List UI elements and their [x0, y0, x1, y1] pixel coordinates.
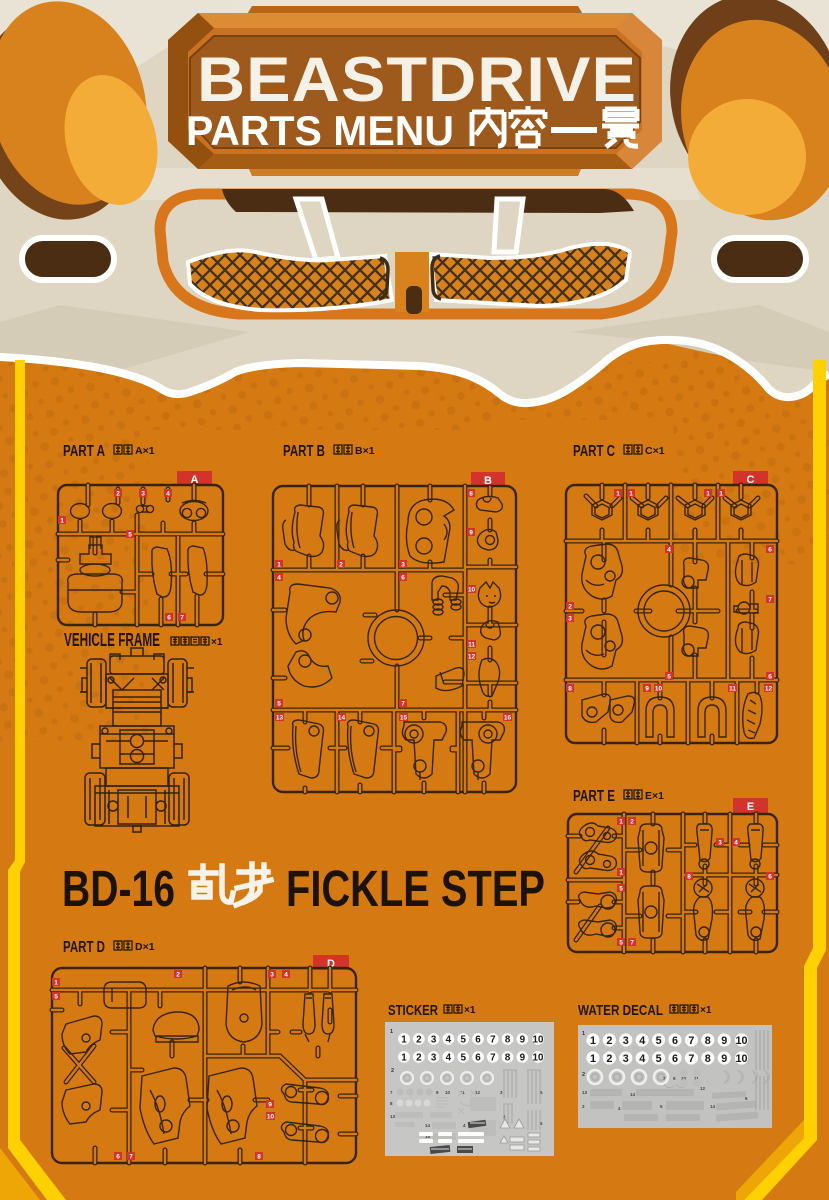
svg-text:3: 3 — [431, 1053, 437, 1064]
svg-text:1: 1 — [582, 1031, 585, 1037]
svg-text:14: 14 — [630, 1092, 636, 1097]
svg-text:1: 1 — [590, 1053, 596, 1065]
svg-text:2: 2 — [582, 1072, 585, 1078]
svg-text:PART B: PART B — [283, 443, 325, 460]
svg-text:5: 5 — [619, 886, 623, 893]
svg-text:6: 6 — [672, 1035, 678, 1047]
svg-text:B×1: B×1 — [355, 445, 375, 457]
svg-text:C×1: C×1 — [645, 445, 665, 457]
svg-text:4: 4 — [166, 491, 170, 498]
svg-text:13: 13 — [582, 1090, 588, 1095]
svg-text:10: 10 — [468, 587, 476, 594]
svg-text:5: 5 — [128, 532, 132, 539]
svg-text:3: 3 — [270, 972, 274, 979]
svg-text:6: 6 — [475, 1053, 481, 1064]
svg-text:WATER DECAL: WATER DECAL — [578, 1002, 663, 1019]
svg-text:3: 3 — [141, 491, 145, 498]
svg-text:1: 1 — [590, 1035, 596, 1047]
svg-text:14: 14 — [425, 1123, 431, 1128]
svg-text:4: 4 — [446, 1053, 452, 1064]
svg-text:6: 6 — [672, 1053, 678, 1065]
svg-text:8: 8 — [257, 1154, 261, 1161]
svg-text:3: 3 — [401, 562, 405, 569]
svg-text:13: 13 — [276, 715, 284, 722]
svg-text:2: 2 — [176, 972, 180, 979]
svg-text:7: 7 — [180, 615, 184, 622]
svg-text:3: 3 — [431, 1035, 437, 1046]
svg-text:3: 3 — [718, 840, 722, 847]
svg-text:9: 9 — [469, 530, 473, 537]
svg-text:6: 6 — [768, 674, 772, 681]
svg-text:2: 2 — [606, 1053, 612, 1065]
svg-text:8: 8 — [505, 1053, 511, 1064]
svg-text:1: 1 — [60, 518, 64, 525]
svg-text:PART C: PART C — [573, 443, 615, 460]
svg-text:10: 10 — [735, 1053, 747, 1065]
svg-text:1: 1 — [401, 1035, 407, 1046]
svg-text:9: 9 — [520, 1035, 526, 1046]
svg-text:4: 4 — [277, 575, 281, 582]
svg-text:12: 12 — [468, 654, 476, 661]
svg-text:PART D: PART D — [63, 939, 105, 956]
svg-text:PART A: PART A — [63, 443, 105, 460]
svg-text:14: 14 — [338, 715, 346, 722]
svg-text:7: 7 — [768, 597, 772, 604]
svg-text:9: 9 — [721, 1035, 727, 1047]
svg-text:A×1: A×1 — [135, 445, 155, 457]
svg-text:1: 1 — [390, 1029, 393, 1035]
svg-text:9: 9 — [268, 1102, 272, 1109]
svg-text:PARTS MENU: PARTS MENU — [186, 107, 454, 154]
svg-text:1: 1 — [401, 1053, 407, 1064]
svg-text:6: 6 — [475, 1035, 481, 1046]
svg-text:10: 10 — [655, 686, 663, 693]
svg-text:11: 11 — [729, 686, 736, 693]
svg-text:1: 1 — [277, 562, 281, 569]
svg-text:8: 8 — [568, 686, 572, 693]
svg-text:4: 4 — [667, 547, 671, 554]
svg-text:BD-16: BD-16 — [62, 860, 175, 917]
svg-text:2: 2 — [391, 1068, 394, 1074]
svg-text:5: 5 — [277, 701, 281, 708]
svg-text:E×1: E×1 — [645, 790, 664, 802]
svg-text:2: 2 — [630, 819, 634, 826]
svg-text:6: 6 — [116, 1154, 120, 1161]
svg-text:×1: ×1 — [700, 1005, 712, 1016]
svg-text:×1: ×1 — [211, 637, 223, 648]
svg-text:6: 6 — [768, 547, 772, 554]
svg-text:8: 8 — [687, 874, 691, 881]
svg-text:1: 1 — [706, 491, 710, 498]
svg-text:×1: ×1 — [464, 1005, 476, 1016]
svg-text:9: 9 — [645, 686, 649, 693]
svg-text:2: 2 — [416, 1053, 422, 1064]
svg-text:4: 4 — [284, 972, 288, 979]
svg-text:4: 4 — [639, 1035, 645, 1047]
svg-text:6: 6 — [167, 615, 171, 622]
svg-text:3: 3 — [623, 1035, 629, 1047]
svg-text:D×1: D×1 — [135, 941, 155, 953]
svg-text:5: 5 — [460, 1035, 466, 1046]
svg-text:4: 4 — [639, 1053, 645, 1065]
svg-text:7: 7 — [630, 940, 634, 947]
svg-text:11: 11 — [468, 642, 475, 649]
svg-text:8: 8 — [705, 1053, 711, 1065]
svg-text:2: 2 — [116, 491, 120, 498]
svg-text:4: 4 — [446, 1035, 452, 1046]
svg-text:1: 1 — [629, 491, 633, 498]
svg-text:7: 7 — [129, 1154, 133, 1161]
svg-text:VEHICLE FRAME: VEHICLE FRAME — [64, 630, 160, 650]
svg-text:8: 8 — [705, 1035, 711, 1047]
svg-text:1: 1 — [616, 491, 620, 498]
svg-text:8: 8 — [505, 1035, 511, 1046]
svg-text:7: 7 — [490, 1035, 496, 1046]
svg-text:12: 12 — [700, 1086, 706, 1091]
svg-text:5: 5 — [619, 940, 623, 947]
svg-text:PART E: PART E — [573, 788, 615, 805]
svg-text:14: 14 — [710, 1104, 716, 1109]
svg-text:5: 5 — [460, 1053, 466, 1064]
svg-text:10: 10 — [533, 1053, 544, 1064]
svg-text:10: 10 — [445, 1090, 451, 1095]
svg-text:E: E — [747, 801, 754, 813]
svg-text:1: 1 — [619, 870, 623, 877]
svg-text:8: 8 — [469, 491, 473, 498]
svg-text:1: 1 — [619, 819, 623, 826]
svg-text:15: 15 — [400, 715, 408, 722]
svg-text:3: 3 — [623, 1053, 629, 1065]
svg-text:7: 7 — [401, 701, 405, 708]
svg-text:5: 5 — [656, 1035, 662, 1047]
svg-text:5: 5 — [667, 674, 671, 681]
svg-text:13: 13 — [390, 1114, 396, 1119]
svg-text:3: 3 — [568, 616, 572, 623]
svg-text:5: 5 — [54, 994, 58, 1001]
svg-text:10: 10 — [267, 1114, 275, 1121]
svg-text:7: 7 — [688, 1053, 694, 1065]
svg-text:10: 10 — [533, 1035, 544, 1046]
svg-text:FICKLE STEP: FICKLE STEP — [286, 860, 545, 917]
svg-text:BEASTDRIVE: BEASTDRIVE — [197, 45, 637, 115]
svg-text:6: 6 — [768, 874, 772, 881]
svg-text:2: 2 — [568, 604, 572, 611]
svg-text:6: 6 — [401, 575, 405, 582]
svg-text:9: 9 — [520, 1053, 526, 1064]
svg-text:7: 7 — [688, 1035, 694, 1047]
svg-text:16: 16 — [504, 715, 512, 722]
svg-text:4: 4 — [734, 840, 738, 847]
svg-text:7: 7 — [490, 1053, 496, 1064]
svg-text:STICKER: STICKER — [388, 1002, 438, 1019]
svg-text:1: 1 — [719, 491, 723, 498]
svg-text:2: 2 — [606, 1035, 612, 1047]
svg-text:5: 5 — [656, 1053, 662, 1065]
svg-text:2: 2 — [416, 1035, 422, 1046]
svg-text:10: 10 — [735, 1035, 747, 1047]
svg-text:12: 12 — [765, 686, 773, 693]
svg-text:1: 1 — [54, 980, 58, 987]
svg-text:9: 9 — [721, 1053, 727, 1065]
svg-text:2: 2 — [339, 562, 343, 569]
